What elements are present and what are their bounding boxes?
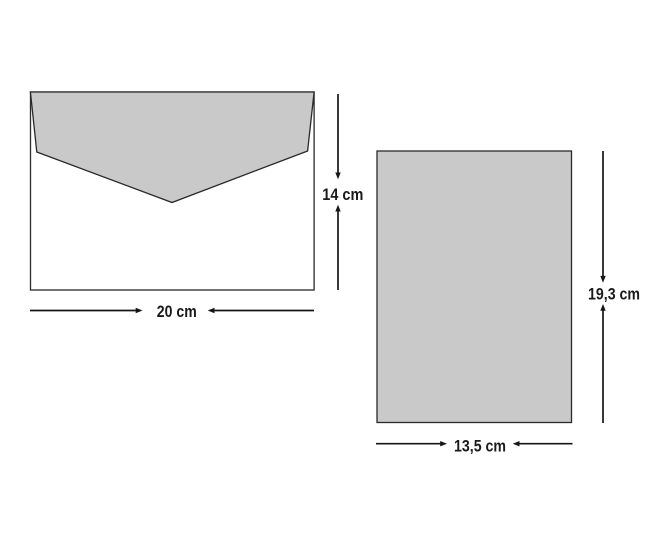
svg-text:13,5 cm: 13,5 cm	[454, 437, 506, 456]
svg-text:19,3 cm: 19,3 cm	[588, 284, 640, 303]
svg-text:20 cm: 20 cm	[157, 302, 197, 321]
svg-text:14 cm: 14 cm	[322, 185, 363, 204]
